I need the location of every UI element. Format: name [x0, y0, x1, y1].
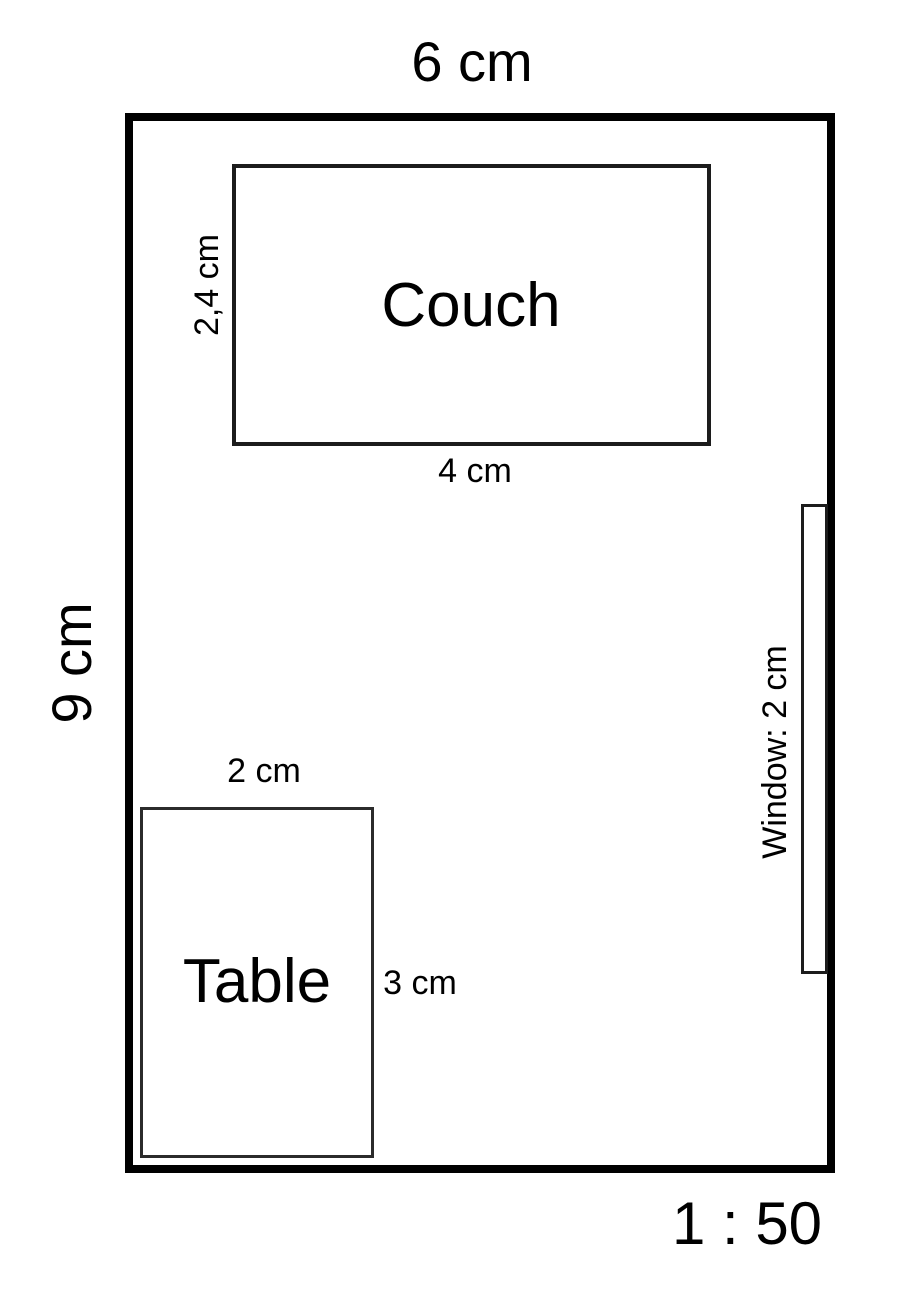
floor-plan-canvas: 6 cm 9 cm Couch 4 cm 2,4 cm Table 2 cm 3… [0, 0, 910, 1311]
table-label: Table [183, 951, 331, 1013]
couch-height-label: 2,4 cm [190, 234, 224, 336]
room-width-label: 6 cm [411, 34, 532, 90]
room-height-label: 9 cm [44, 602, 100, 723]
table-width-label: 2 cm [227, 754, 301, 788]
couch-label: Couch [381, 275, 560, 337]
couch-width-label: 4 cm [438, 454, 512, 488]
table-height-label: 3 cm [383, 966, 457, 1000]
window-rect [801, 504, 828, 974]
window-label: Window: 2 cm [758, 645, 792, 859]
scale-label: 1 : 50 [672, 1194, 822, 1254]
